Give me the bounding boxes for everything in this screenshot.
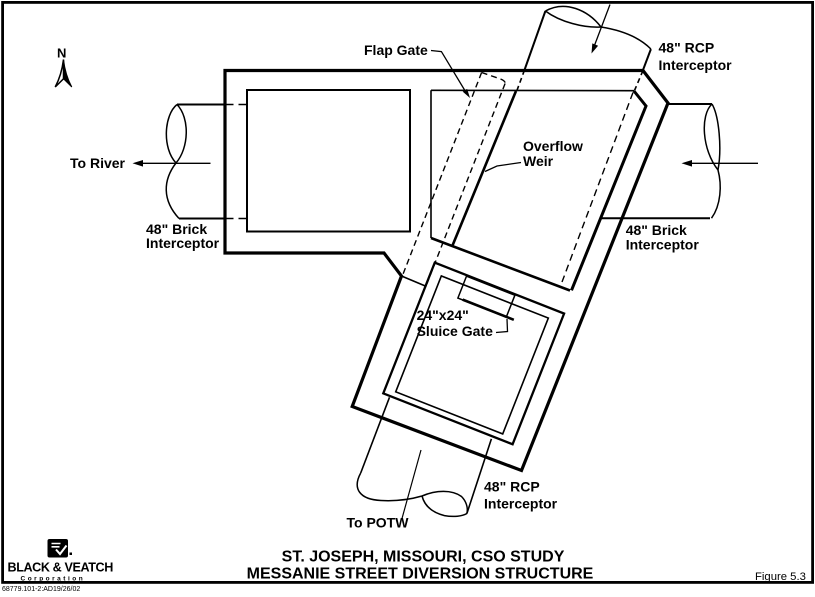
svg-text:48" RCP: 48" RCP bbox=[659, 39, 715, 55]
svg-text:N: N bbox=[57, 46, 66, 61]
svg-text:Interceptor: Interceptor bbox=[659, 57, 733, 73]
svg-text:Interceptor: Interceptor bbox=[146, 235, 220, 251]
svg-text:To River: To River bbox=[70, 155, 126, 171]
svg-text:Interceptor: Interceptor bbox=[484, 496, 558, 512]
svg-text:Overflow: Overflow bbox=[523, 138, 583, 154]
svg-text:Flap Gate: Flap Gate bbox=[364, 42, 428, 58]
svg-text:Interceptor: Interceptor bbox=[626, 237, 700, 253]
svg-text:24"x24": 24"x24" bbox=[417, 307, 469, 323]
svg-text:Weir: Weir bbox=[523, 153, 554, 169]
svg-text:Figure 5.3: Figure 5.3 bbox=[755, 571, 806, 583]
svg-text:ST. JOSEPH, MISSOURI, CSO STUD: ST. JOSEPH, MISSOURI, CSO STUDY bbox=[282, 549, 565, 566]
svg-text:68779.101-2:AD19/26/02: 68779.101-2:AD19/26/02 bbox=[2, 586, 80, 592]
svg-text:Sluice Gate: Sluice Gate bbox=[417, 323, 493, 339]
svg-text:MESSANIE STREET DIVERSION STRU: MESSANIE STREET DIVERSION STRUCTURE bbox=[247, 566, 594, 583]
svg-text:Corporation: Corporation bbox=[21, 576, 86, 583]
svg-text:BLACK & VEATCH: BLACK & VEATCH bbox=[8, 561, 114, 575]
svg-text:To POTW: To POTW bbox=[347, 515, 410, 531]
svg-text:48" RCP: 48" RCP bbox=[484, 479, 540, 495]
